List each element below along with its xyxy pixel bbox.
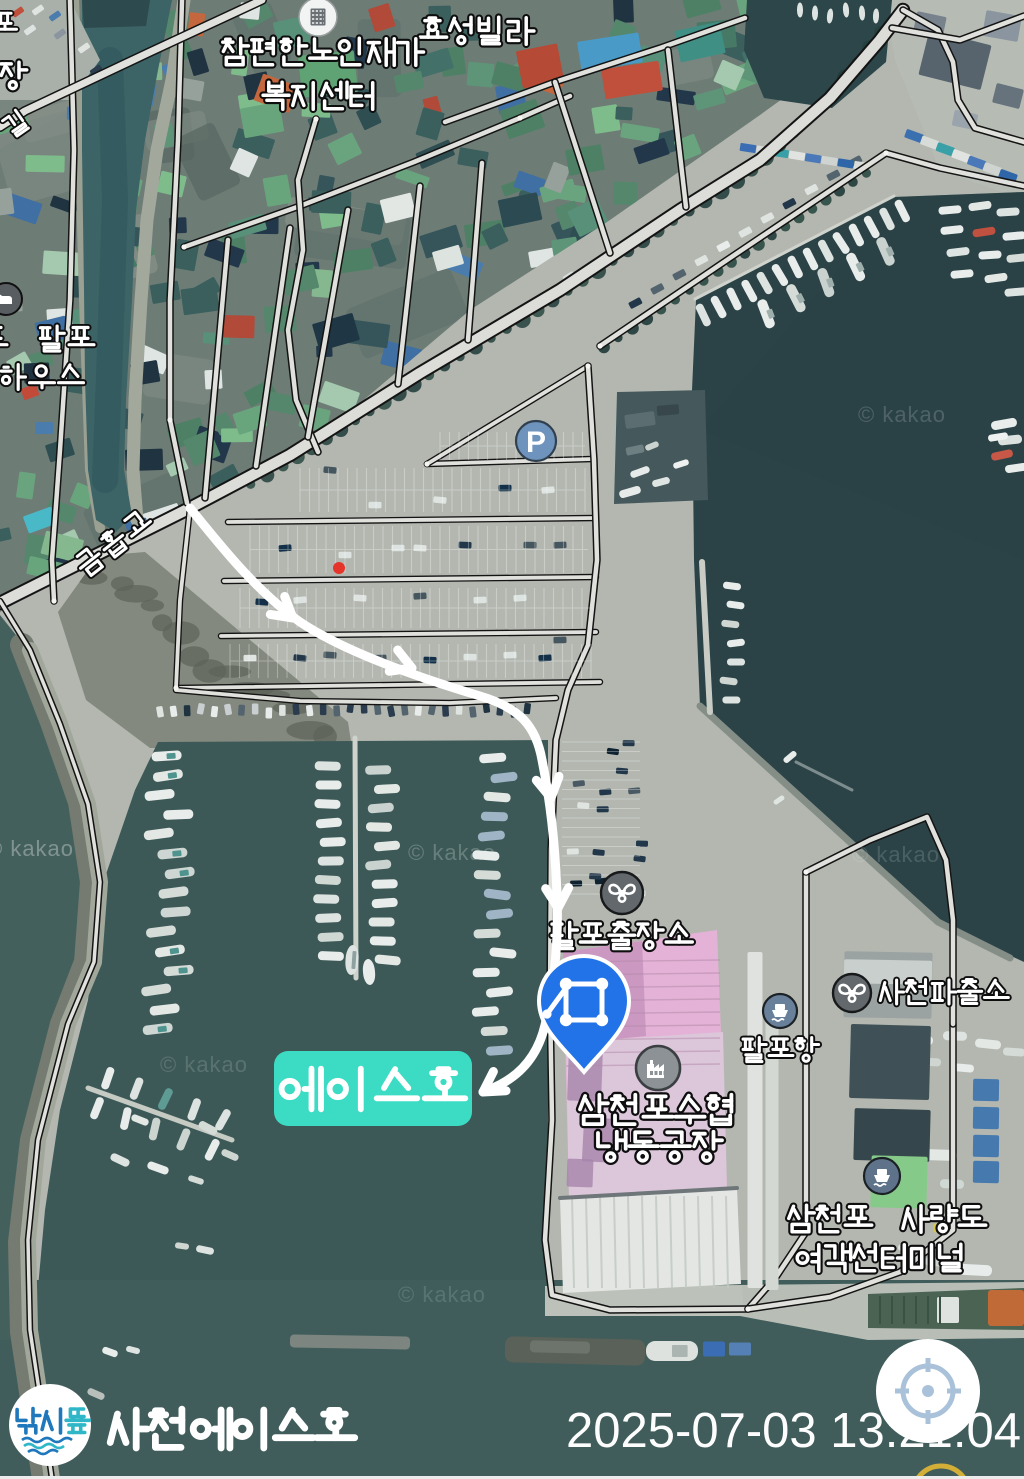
svg-text:© kakao: © kakao (160, 1052, 248, 1077)
svg-text:© kakao: © kakao (398, 1282, 486, 1307)
svg-text:© kakao: © kakao (858, 402, 946, 427)
svg-text:© kakao: © kakao (852, 842, 940, 867)
svg-text:© kakao: © kakao (408, 840, 496, 865)
svg-text:P: P (526, 426, 546, 459)
svg-text:© kakao: © kakao (0, 836, 74, 861)
